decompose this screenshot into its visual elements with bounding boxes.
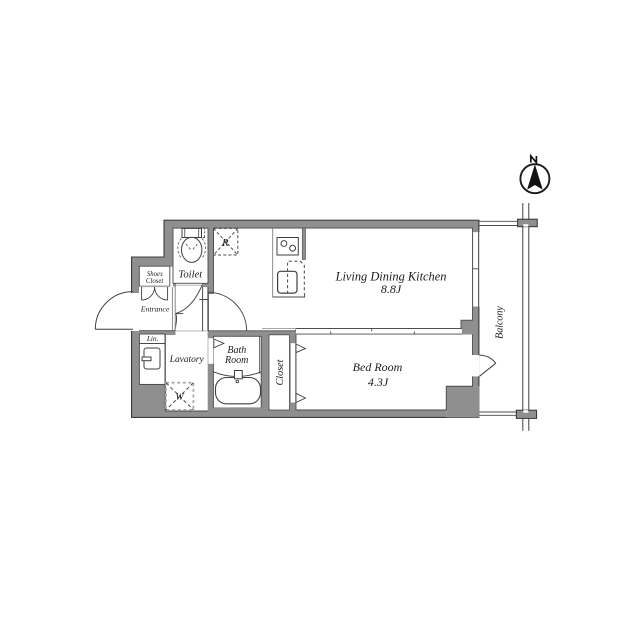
svg-text:Closet: Closet — [146, 278, 164, 285]
svg-text:8.8J: 8.8J — [381, 282, 402, 296]
svg-text:Toilet: Toilet — [178, 269, 203, 280]
svg-text:Entrance: Entrance — [140, 305, 170, 314]
svg-text:Bed Room: Bed Room — [353, 360, 403, 374]
svg-text:Balcony: Balcony — [495, 306, 506, 339]
svg-text:Closet: Closet — [275, 358, 286, 385]
svg-text:R: R — [221, 238, 229, 249]
svg-text:Lin.: Lin. — [146, 335, 159, 343]
svg-text:4.3J: 4.3J — [368, 375, 389, 389]
svg-text:Room: Room — [224, 355, 248, 366]
svg-text:Lavatory: Lavatory — [169, 355, 205, 365]
svg-text:Living Dining Kitchen: Living Dining Kitchen — [335, 269, 447, 283]
